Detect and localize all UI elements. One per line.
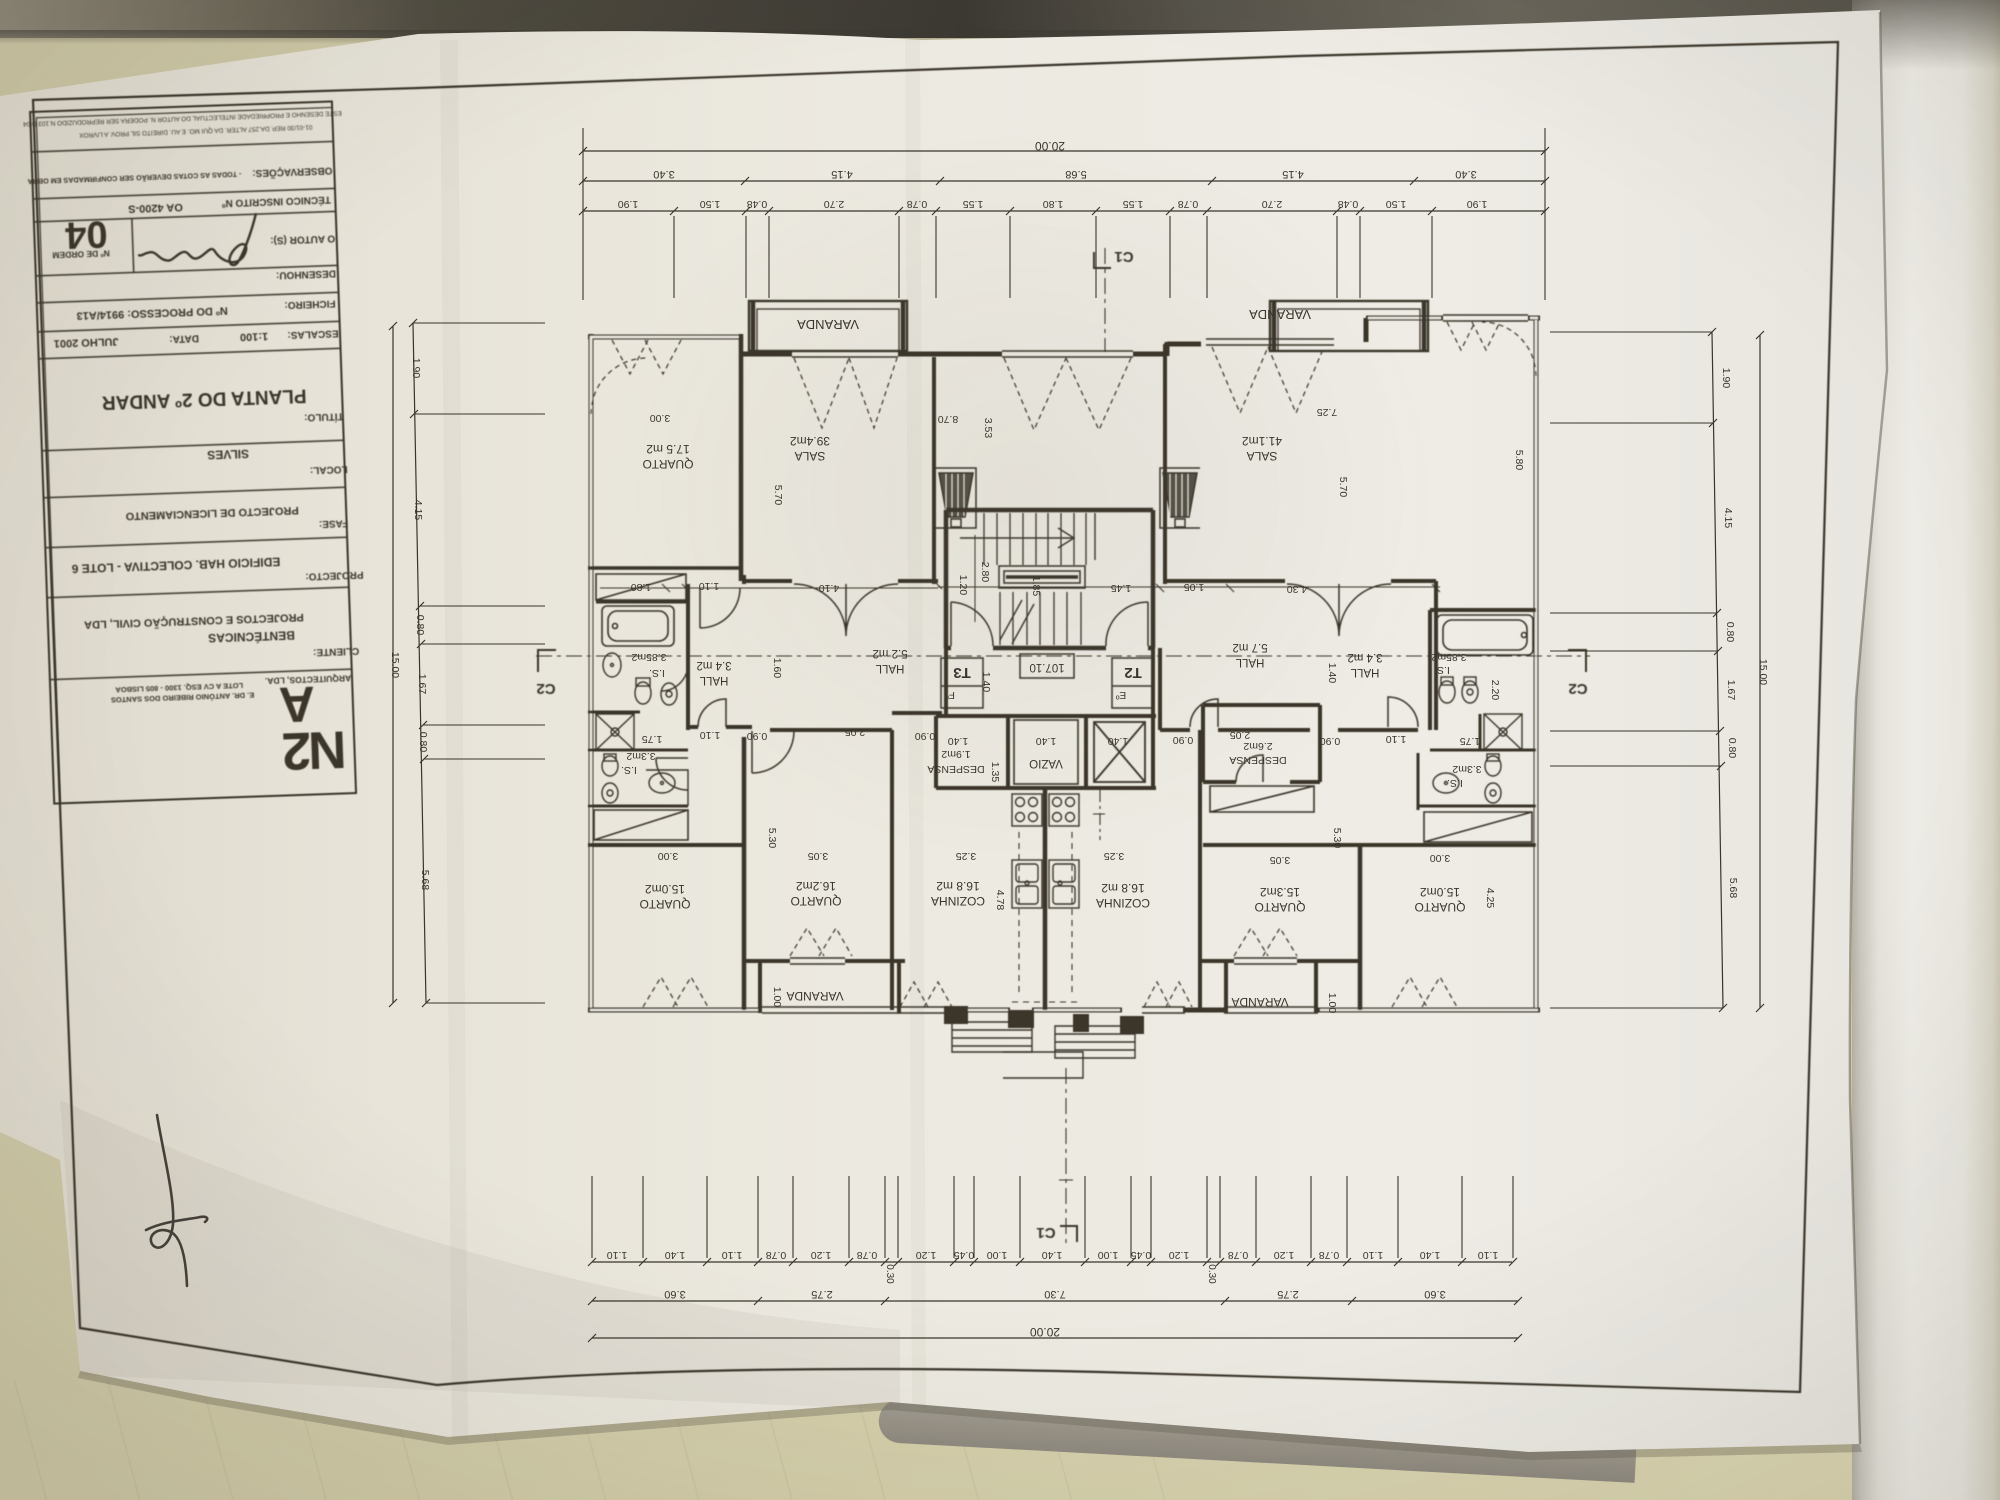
svg-text:C2: C2 (1568, 680, 1587, 697)
svg-text:4.30: 4.30 (1287, 583, 1308, 595)
svg-text:2.05: 2.05 (845, 726, 866, 738)
svg-text:107.10: 107.10 (1029, 661, 1064, 673)
svg-text:DATA:: DATA: (169, 332, 199, 344)
svg-text:5.68: 5.68 (1065, 168, 1086, 180)
svg-text:1.40: 1.40 (980, 672, 992, 693)
svg-text:8.70: 8.70 (938, 413, 959, 425)
svg-text:LOCAL:: LOCAL: (310, 463, 348, 475)
svg-text:1.00: 1.00 (1326, 993, 1338, 1014)
svg-text:0.90: 0.90 (915, 730, 936, 742)
svg-text:5.30: 5.30 (1331, 828, 1343, 849)
svg-text:1.10: 1.10 (699, 580, 720, 592)
svg-text:C2: C2 (536, 680, 555, 697)
svg-text:HALL: HALL (699, 674, 728, 686)
svg-text:1.00: 1.00 (1098, 1249, 1119, 1261)
svg-text:3.60: 3.60 (1424, 1288, 1445, 1300)
svg-text:VAZIO: VAZIO (1029, 757, 1063, 769)
svg-text:1.10: 1.10 (607, 1249, 628, 1261)
svg-text:3.3m2: 3.3m2 (626, 750, 655, 762)
svg-text:0.78: 0.78 (907, 198, 928, 210)
svg-text:3.3m2: 3.3m2 (1452, 763, 1481, 775)
svg-text:1.40: 1.40 (1042, 1249, 1063, 1261)
svg-text:2.80: 2.80 (979, 562, 991, 583)
svg-text:1.20: 1.20 (1169, 1249, 1190, 1261)
svg-text:1.85: 1.85 (1030, 576, 1042, 597)
svg-text:16.2m2: 16.2m2 (796, 879, 836, 893)
svg-text:1.40: 1.40 (1108, 735, 1129, 747)
svg-text:0.78: 0.78 (857, 1249, 878, 1261)
svg-text:1.00: 1.00 (771, 987, 783, 1008)
svg-text:0.45: 0.45 (954, 1249, 975, 1261)
svg-text:SILVES: SILVES (207, 447, 249, 462)
svg-text:1.05: 1.05 (1184, 581, 1205, 593)
svg-text:16.8 m2: 16.8 m2 (1101, 881, 1145, 895)
svg-text:3.53: 3.53 (982, 418, 994, 439)
svg-text:C1: C1 (1036, 1224, 1055, 1241)
svg-text:FICHEIRO:: FICHEIRO: (284, 297, 335, 310)
svg-text:1.10: 1.10 (1386, 733, 1407, 745)
svg-text:3.60: 3.60 (664, 1288, 685, 1300)
svg-text:4.10: 4.10 (819, 582, 840, 594)
svg-text:0.48: 0.48 (1338, 198, 1359, 210)
svg-text:5.7 m2: 5.7 m2 (1232, 641, 1267, 653)
svg-text:SALA: SALA (1247, 449, 1278, 463)
svg-text:1.55: 1.55 (1123, 198, 1144, 210)
svg-text:Eº: Eº (1115, 689, 1126, 700)
svg-text:2.05: 2.05 (1230, 729, 1251, 741)
svg-text:DESPENSA: DESPENSA (927, 763, 984, 775)
svg-text:C1: C1 (1114, 248, 1133, 265)
svg-text:I.S.: I.S. (621, 764, 637, 776)
svg-text:1.20: 1.20 (1274, 1249, 1295, 1261)
svg-text:T3: T3 (953, 664, 971, 681)
svg-text:BENTÉCNICAS: BENTÉCNICAS (208, 628, 295, 646)
svg-text:04: 04 (65, 212, 109, 255)
svg-text:0.48: 0.48 (747, 198, 768, 210)
svg-text:3.00: 3.00 (650, 412, 671, 424)
svg-text:1.9m2: 1.9m2 (941, 748, 970, 760)
svg-text:0.90: 0.90 (1173, 734, 1194, 746)
svg-text:20.00: 20.00 (1035, 139, 1065, 153)
svg-text:3.85m2: 3.85m2 (631, 651, 666, 663)
svg-text:HALL: HALL (1235, 656, 1264, 668)
svg-text:5.30: 5.30 (766, 828, 778, 849)
svg-text:3.00: 3.00 (1430, 852, 1451, 864)
svg-text:5.80: 5.80 (1513, 450, 1525, 471)
svg-text:1.40: 1.40 (1036, 735, 1057, 747)
svg-text:17.5 m2: 17.5 m2 (646, 442, 690, 456)
svg-text:5.70: 5.70 (1337, 477, 1349, 498)
svg-text:1.80: 1.80 (1043, 198, 1064, 210)
svg-text:3.4 m2: 3.4 m2 (1347, 651, 1382, 663)
svg-text:FASE:: FASE: (319, 517, 349, 529)
svg-text:1.75: 1.75 (642, 733, 663, 745)
svg-text:VARANDA: VARANDA (1249, 307, 1311, 322)
svg-text:1.10: 1.10 (1478, 1249, 1499, 1261)
svg-text:QUARTO: QUARTO (1415, 900, 1466, 914)
svg-text:1.20: 1.20 (811, 1249, 832, 1261)
svg-text:1.80: 1.80 (631, 581, 652, 593)
svg-text:16.8 m2: 16.8 m2 (936, 879, 980, 893)
svg-text:QUARTO: QUARTO (640, 897, 691, 911)
svg-text:0.80: 0.80 (1724, 622, 1736, 643)
svg-text:CLIENTE:: CLIENTE: (313, 645, 359, 658)
svg-text:3.25: 3.25 (1104, 850, 1125, 862)
svg-text:Fº: Fº (945, 689, 955, 700)
svg-text:1.00: 1.00 (987, 1249, 1008, 1261)
svg-text:A: A (278, 675, 316, 732)
svg-text:QUARTO: QUARTO (1255, 900, 1306, 914)
svg-text:15.3m2: 15.3m2 (1260, 885, 1300, 899)
svg-text:3.40: 3.40 (1455, 168, 1476, 180)
svg-text:1.50: 1.50 (700, 198, 721, 210)
svg-text:1.67: 1.67 (1725, 680, 1737, 701)
svg-text:SALA: SALA (795, 449, 826, 463)
svg-text:1.10: 1.10 (700, 729, 721, 741)
svg-text:1.60: 1.60 (771, 658, 783, 679)
svg-text:0.78: 0.78 (1178, 198, 1199, 210)
svg-text:2.20: 2.20 (1489, 680, 1501, 701)
svg-text:1.90: 1.90 (618, 198, 639, 210)
svg-text:3.85m2: 3.85m2 (1431, 651, 1466, 663)
svg-text:I.S.: I.S. (649, 667, 665, 679)
svg-text:1.20: 1.20 (916, 1249, 937, 1261)
svg-text:3.4 m2: 3.4 m2 (696, 659, 731, 671)
svg-text:7.25: 7.25 (1317, 406, 1338, 418)
svg-text:I.S.: I.S. (1447, 777, 1463, 789)
svg-text:0.80: 0.80 (417, 732, 429, 753)
svg-text:2.70: 2.70 (824, 198, 845, 210)
svg-text:4.15: 4.15 (831, 168, 852, 180)
svg-text:QUARTO: QUARTO (791, 894, 842, 908)
svg-text:1.45: 1.45 (1111, 582, 1132, 594)
svg-text:HALL: HALL (1350, 666, 1379, 678)
svg-text:O AUTOR (S):: O AUTOR (S): (270, 232, 335, 245)
svg-text:15.00: 15.00 (1757, 659, 1769, 685)
svg-text:1.67: 1.67 (416, 674, 428, 695)
svg-text:1.20: 1.20 (957, 575, 969, 596)
svg-text:0.78: 0.78 (1228, 1249, 1249, 1261)
svg-text:VARANDA: VARANDA (786, 989, 843, 1003)
svg-text:3.25: 3.25 (956, 850, 977, 862)
svg-text:1.90: 1.90 (1467, 198, 1488, 210)
svg-text:7.30: 7.30 (1044, 1288, 1065, 1300)
svg-text:0.78: 0.78 (766, 1249, 787, 1261)
svg-text:4.15: 4.15 (412, 500, 424, 521)
svg-text:3.00: 3.00 (658, 850, 679, 862)
svg-text:3.40: 3.40 (653, 168, 674, 180)
svg-text:ESCALAS:: ESCALAS: (287, 327, 338, 340)
svg-text:1.40: 1.40 (665, 1249, 686, 1261)
svg-text:4.78: 4.78 (994, 890, 1006, 911)
svg-text:4.15: 4.15 (1722, 508, 1734, 529)
svg-text:20.00: 20.00 (1030, 1325, 1060, 1339)
svg-text:0.30: 0.30 (1206, 1264, 1217, 1284)
svg-text:1.90: 1.90 (410, 358, 422, 379)
svg-text:0.80: 0.80 (414, 615, 426, 636)
svg-text:1.40: 1.40 (948, 735, 969, 747)
svg-text:OA 4200-S: OA 4200-S (128, 201, 183, 215)
svg-text:PROJECTO:: PROJECTO: (305, 569, 364, 582)
svg-text:4.25: 4.25 (1484, 888, 1496, 909)
svg-text:15.0m2: 15.0m2 (1420, 885, 1460, 899)
svg-text:0.90: 0.90 (1320, 735, 1341, 747)
svg-text:VARANDA: VARANDA (797, 317, 859, 332)
svg-text:HALL: HALL (875, 662, 904, 674)
svg-text:0.30: 0.30 (884, 1264, 895, 1284)
svg-text:2.75: 2.75 (811, 1288, 832, 1300)
svg-text:1.50: 1.50 (1386, 198, 1407, 210)
svg-text:COZINHA: COZINHA (931, 894, 985, 908)
svg-text:1.10: 1.10 (722, 1249, 743, 1261)
svg-text:1.55: 1.55 (963, 198, 984, 210)
svg-text:1.10: 1.10 (1363, 1249, 1384, 1261)
svg-text:39.4m2: 39.4m2 (790, 434, 830, 448)
svg-text:DESPENSA: DESPENSA (1229, 754, 1286, 766)
svg-text:5.68: 5.68 (419, 870, 431, 891)
svg-text:T2: T2 (1124, 664, 1142, 681)
svg-text:I.S.: I.S. (1434, 664, 1450, 676)
svg-text:1:100: 1:100 (240, 330, 269, 343)
svg-text:3.05: 3.05 (1270, 854, 1291, 866)
svg-text:1.35: 1.35 (989, 762, 1001, 783)
svg-text:VARANDA: VARANDA (1231, 995, 1288, 1009)
svg-text:4.15: 4.15 (1282, 168, 1303, 180)
svg-text:2.70: 2.70 (1262, 198, 1283, 210)
svg-text:QUARTO: QUARTO (643, 457, 694, 471)
svg-text:5.68: 5.68 (1727, 878, 1739, 899)
svg-text:1.75: 1.75 (1460, 735, 1481, 747)
svg-text:JULHO 2001: JULHO 2001 (54, 335, 119, 349)
svg-text:0.80: 0.80 (1726, 738, 1738, 759)
svg-text:1.40: 1.40 (1420, 1249, 1441, 1261)
svg-text:5.70: 5.70 (772, 485, 784, 506)
svg-text:15.0m2: 15.0m2 (645, 882, 685, 896)
svg-text:1.40: 1.40 (1326, 663, 1338, 684)
svg-text:DESENHOU:: DESENHOU: (276, 267, 336, 280)
svg-text:0.90: 0.90 (747, 730, 768, 742)
svg-text:15.00: 15.00 (389, 652, 401, 678)
svg-text:2.75: 2.75 (1277, 1288, 1298, 1300)
svg-text:3.05: 3.05 (808, 850, 829, 862)
svg-text:0.78: 0.78 (1319, 1249, 1340, 1261)
svg-text:1.90: 1.90 (1720, 368, 1732, 389)
svg-text:41.1m2: 41.1m2 (1242, 434, 1282, 448)
svg-text:COZINHA: COZINHA (1096, 896, 1150, 910)
svg-text:0.45: 0.45 (1131, 1249, 1152, 1261)
svg-text:5.2 m2: 5.2 m2 (872, 647, 907, 659)
